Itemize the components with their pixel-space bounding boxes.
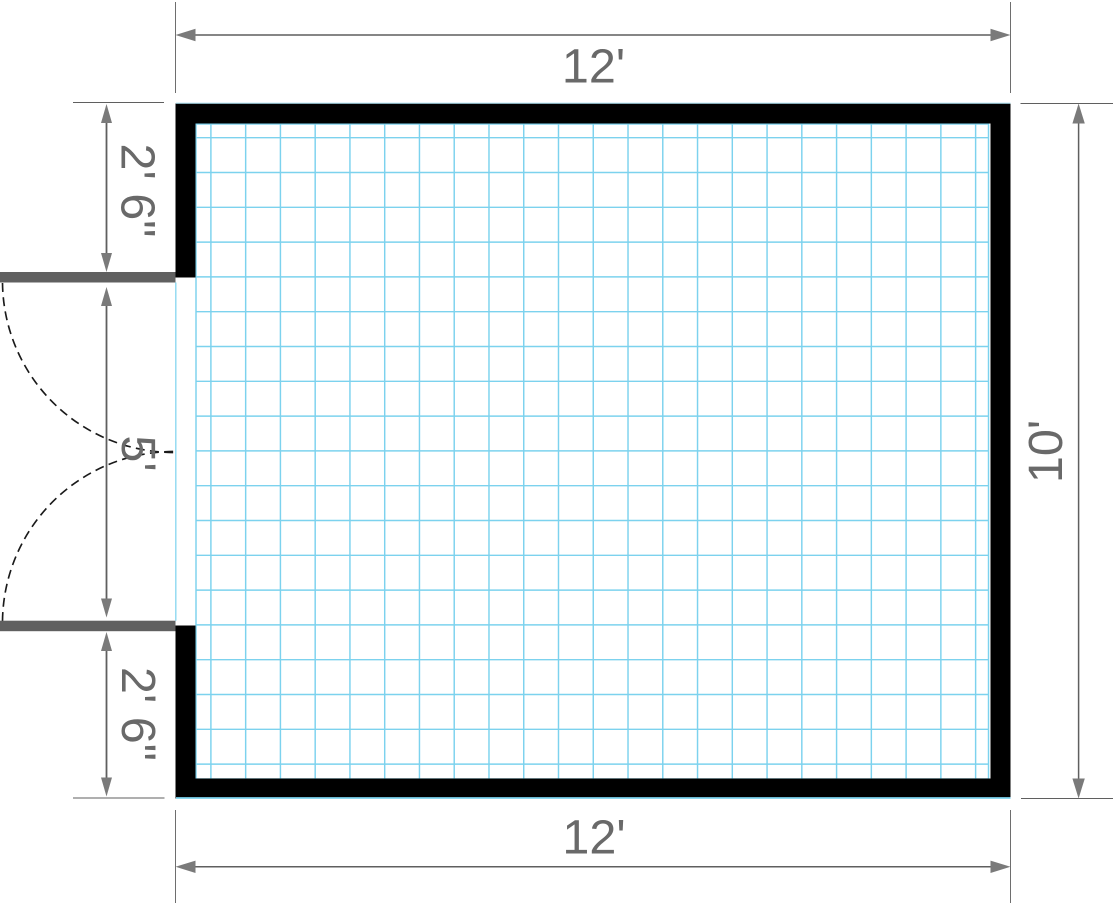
svg-text:12': 12' [562, 40, 625, 94]
svg-text:12': 12' [562, 811, 625, 865]
svg-text:2' 6": 2' 6" [111, 144, 165, 238]
svg-text:2' 6": 2' 6" [111, 667, 165, 761]
svg-text:5': 5' [111, 435, 165, 471]
svg-text:10': 10' [1019, 420, 1073, 483]
